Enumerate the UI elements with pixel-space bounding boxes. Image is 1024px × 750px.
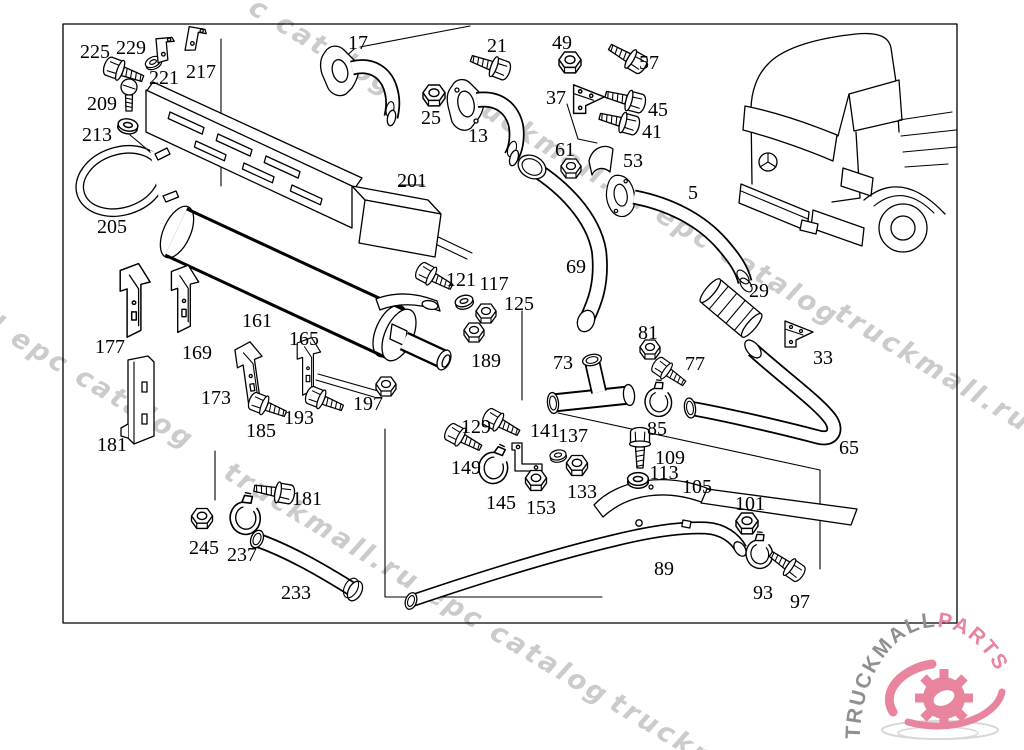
part-label-93: 93 [753,582,773,604]
parts-catalog-page: c catalogtruckmall.ru epc catalogtruckma… [0,0,1024,750]
part-label-73: 73 [553,352,573,374]
part-label-173: 173 [201,387,231,409]
truck-cab-drawing [739,34,957,252]
watermark-text: c catalog [243,0,400,103]
part-label-193: 193 [284,407,314,429]
part-label-153: 153 [526,497,556,519]
logo-text-truckmall: TRUCKMALL [842,609,938,740]
screw-icon [121,79,137,111]
pipe-65-drawing [683,337,834,438]
part-label-25: 25 [421,107,441,129]
part-label-141: 141 [530,420,560,442]
gusset-icon [785,321,813,347]
part-label-5: 5 [688,182,698,204]
clamp-icon [478,443,510,485]
nut-icon [192,509,213,529]
part-label-61: 61 [555,139,575,161]
mount-icon [120,264,150,338]
part-label-229: 229 [116,37,146,59]
nut-icon [423,85,445,106]
part-label-37: 37 [546,87,566,109]
nut-icon [561,159,581,178]
part-label-53: 53 [623,150,643,172]
bracketL-icon [185,27,207,54]
nut-icon [464,323,484,342]
truckmall-logo: TRUCKMALLPARTS [842,609,1013,740]
nut-icon [736,513,758,534]
exhaust-parts-diagram: c catalogtruckmall.ru epc catalogtruckma… [0,0,1024,750]
part-label-77: 77 [685,353,705,375]
part-label-181: 181 [97,434,127,456]
part-label-165: 165 [289,328,319,350]
washer-icon [628,473,649,489]
watermark-text: truckmall.ru e [829,297,1024,456]
part-label-97: 97 [790,591,810,613]
nut-icon [559,52,581,73]
part-label-149: 149 [451,457,481,479]
part-label-233: 233 [281,582,311,604]
clamp-icon [640,378,675,420]
bracketL-icon [156,37,176,62]
part-label-29: 29 [749,280,769,302]
part-label-101: 101 [735,493,765,515]
part-label-161: 161 [242,310,272,332]
washer-icon [117,117,139,135]
watermark-text: truckmall [604,687,767,750]
part-label-81: 81 [638,322,658,344]
part-label-49: 49 [552,32,572,54]
nut-icon [567,456,588,476]
part-label-213: 213 [82,124,112,146]
part-label-205: 205 [97,216,127,238]
part-label-105: 105 [682,476,712,498]
part-label-245: 245 [189,537,219,559]
part-label-125: 125 [504,293,534,315]
mount-icon [171,265,198,332]
part-label-113: 113 [649,462,678,484]
nut-icon [526,471,547,491]
part-label-41: 41 [642,121,662,143]
bolt-icon [246,390,289,423]
clamp-icon [741,530,776,572]
part-label-33: 33 [813,347,833,369]
part-label-133: 133 [567,481,597,503]
part-label-185: 185 [246,420,276,442]
part-label-169: 169 [182,342,212,364]
part-label-13: 13 [468,125,488,147]
part-label-201: 201 [397,170,427,192]
part-label-221: 221 [149,67,179,89]
bolt-icon [603,84,648,115]
part-label-129: 129 [461,416,491,438]
gear-icon [915,669,973,727]
part-label-57: 57 [639,52,659,74]
part-label-117: 117 [479,273,508,295]
part-label-237: 237 [227,544,257,566]
part-label-189: 189 [471,350,501,372]
part-label-65: 65 [839,437,859,459]
part-label-209: 209 [87,93,117,115]
logo-text-parts: PARTS [936,609,1013,675]
part-label-85: 85 [647,418,667,440]
part-label-45: 45 [648,99,668,121]
part-label-145: 145 [486,492,516,514]
part-label-21: 21 [487,35,507,57]
part-label-17: 17 [348,32,368,54]
washer-icon [454,293,475,311]
part-label-69: 69 [566,256,586,278]
part-label-225: 225 [80,41,110,63]
zbracket-icon [512,443,542,471]
part-label-137: 137 [558,425,588,447]
clamp-ring-drawing [67,134,185,227]
part-label-217: 217 [186,61,216,83]
part-label-121: 121 [446,269,476,291]
part-label-89: 89 [654,558,674,580]
part-label-181: 181 [292,488,322,510]
washer-icon [549,449,567,464]
nut-icon [476,304,496,323]
gusset-icon [574,85,605,114]
part-label-177: 177 [95,336,125,358]
part-label-197: 197 [353,393,383,415]
